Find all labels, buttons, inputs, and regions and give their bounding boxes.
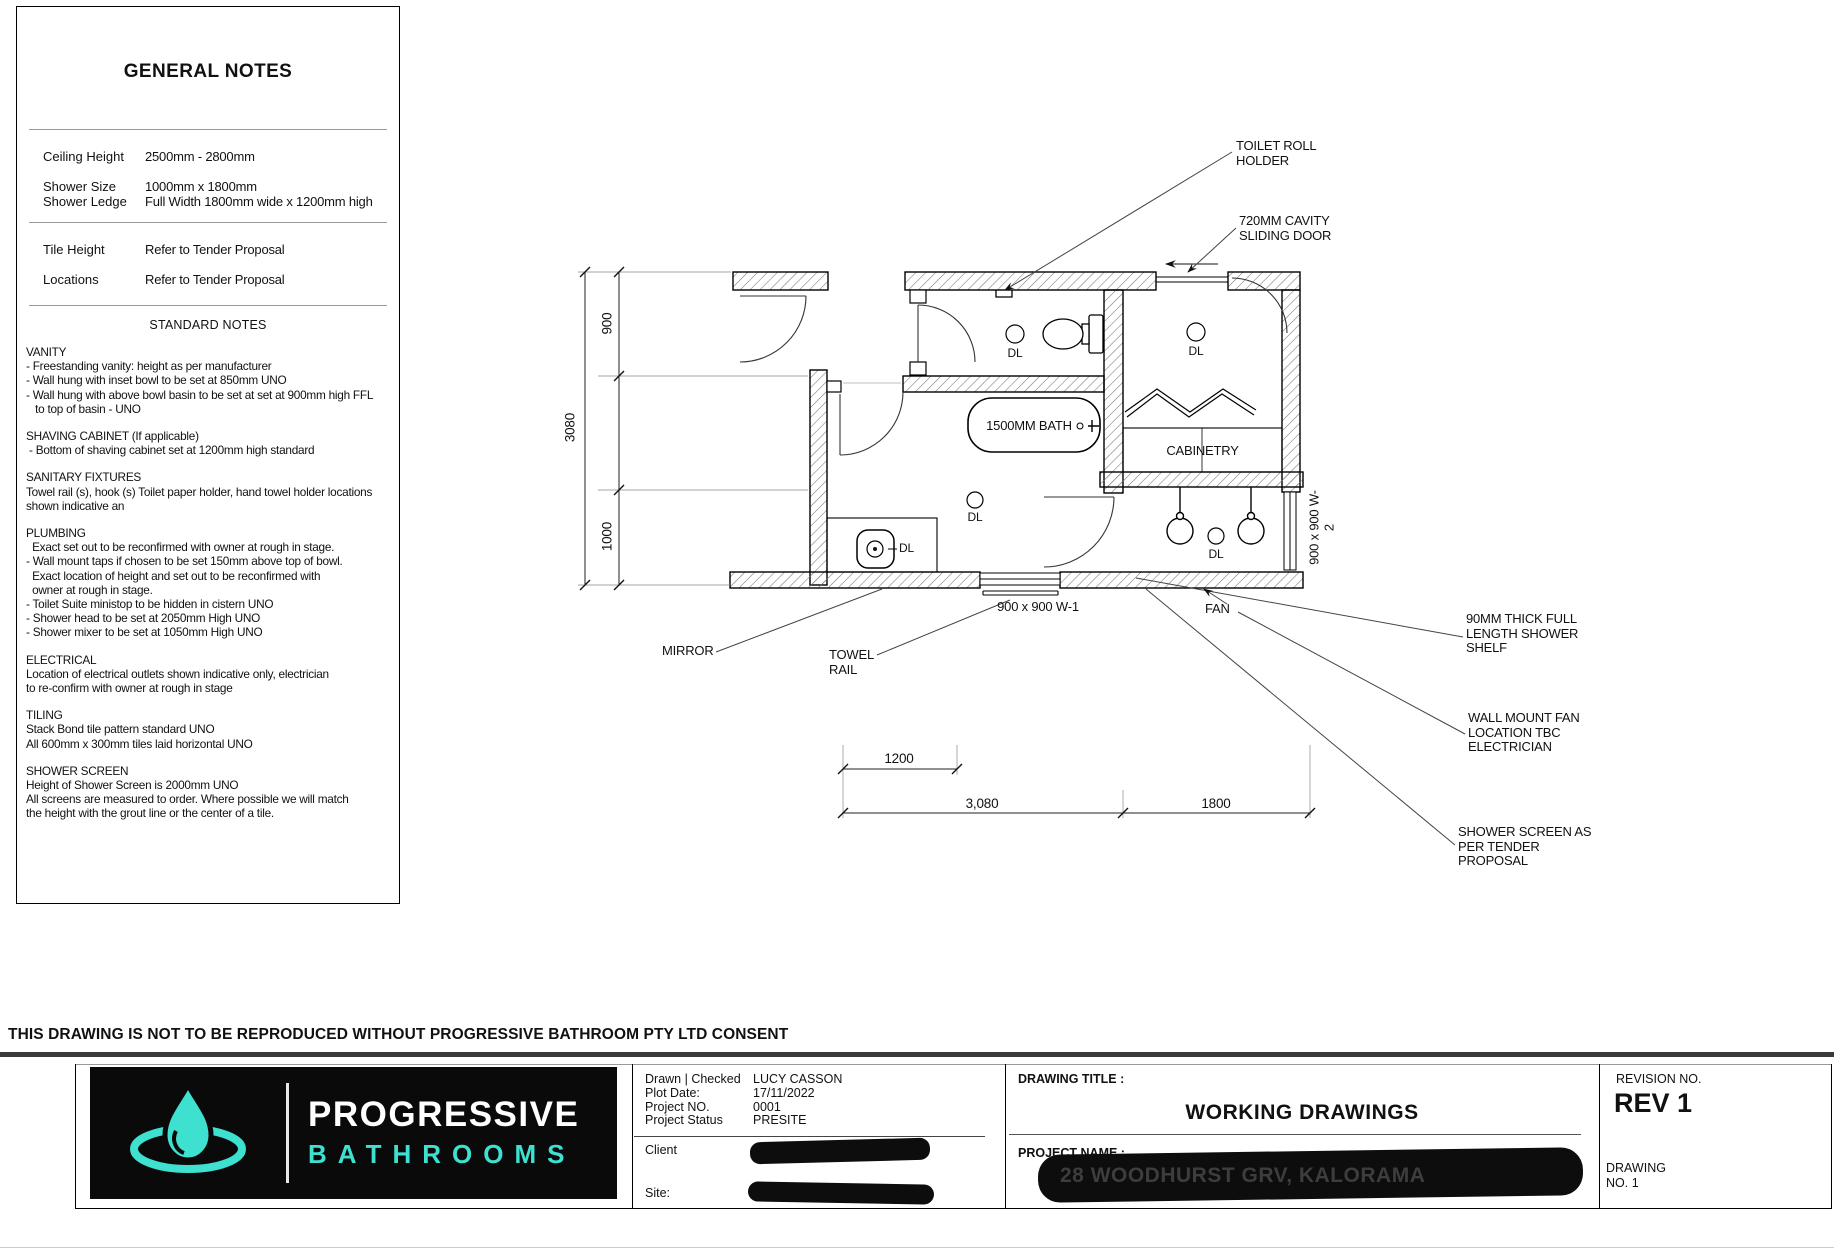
titleblock-border-left (75, 1064, 76, 1209)
spec-label: Tile Height (43, 242, 143, 257)
spec-label: Locations (43, 272, 143, 287)
note-section-line: - Bottom of shaving cabinet set at 1200m… (26, 443, 393, 457)
meta-label: Plot Date: (645, 1087, 753, 1101)
hanging-rail-symbol (1125, 389, 1256, 417)
note-section-line: Exact location of height and set out to … (26, 569, 393, 583)
note-section-heading: SHOWER SCREEN (26, 764, 393, 778)
note-section-heading: SANITARY FIXTURES (26, 470, 393, 484)
standard-notes-title: STANDARD NOTES (17, 318, 399, 332)
spec-value-line: Refer to Tender Proposal (145, 242, 391, 257)
downlight-label: DL (1001, 347, 1029, 360)
note-section: PLUMBING Exact set out to be reconfirmed… (26, 526, 393, 640)
logo-name-line1: PROGRESSIVE (308, 1095, 579, 1135)
downlight-label: DL (961, 511, 989, 524)
callout-towel-rail: TOWEL RAIL (829, 648, 893, 677)
downlight-label: DL (1202, 548, 1230, 561)
meta-value: PRESITE (753, 1114, 975, 1128)
note-section-heading: ELECTRICAL (26, 653, 393, 667)
note-section: VANITY- Freestanding vanity: height as p… (26, 345, 393, 416)
dim-1200: 1200 (869, 751, 929, 766)
project-meta: Drawn | CheckedLUCY CASSONPlot Date:17/1… (645, 1073, 975, 1128)
callout-shower-screen: SHOWER SCREEN AS PER TENDER PROPOSAL (1458, 825, 1598, 869)
spec-value-line: 1000mm x 1800mm (145, 179, 391, 194)
callout-mirror: MIRROR (662, 644, 714, 659)
toilet-roll-holder-symbol (996, 290, 1012, 297)
general-notes-panel: GENERAL NOTES Ceiling Height2500mm - 280… (16, 6, 400, 904)
note-section-line: the height with the grout line or the ce… (26, 806, 393, 820)
spec-value-line: Refer to Tender Proposal (145, 272, 391, 287)
titleblock-border-bottom (75, 1208, 1832, 1209)
note-section-heading: TILING (26, 708, 393, 722)
note-section-line: to re-confirm with owner at rough in sta… (26, 681, 393, 695)
meta-value: 17/11/2022 (753, 1087, 975, 1101)
cabinetry-label: CABINETRY (1123, 444, 1282, 459)
revision-label: REVISION NO. (1616, 1072, 1701, 1086)
water-drop-icon (90, 1067, 286, 1199)
titleblock-border-top (75, 1064, 1832, 1065)
company-logo: PROGRESSIVE BATHROOMS (90, 1067, 617, 1199)
note-section-line: Towel rail (s), hook (s) Toilet paper ho… (26, 485, 393, 499)
callout-shower-shelf: 90MM THICK FULL LENGTH SHOWER SHELF (1466, 612, 1606, 656)
meta-row: Project StatusPRESITE (645, 1114, 975, 1128)
note-section-line: - Freestanding vanity: height as per man… (26, 359, 393, 373)
spec-row: Ceiling Height2500mm - 2800mm (43, 149, 391, 164)
spec-label-line: Ceiling Height (43, 149, 143, 164)
titleblock-divider (1599, 1064, 1600, 1209)
logo-separator (286, 1083, 289, 1183)
note-section-line: - Wall hung with inset bowl to be set at… (26, 373, 393, 387)
spec-label: Shower SizeShower Ledge (43, 179, 143, 209)
bath-label: 1500MM BATH (968, 419, 1090, 434)
note-section-line: owner at rough in stage. (26, 583, 393, 597)
meta-row: Drawn | CheckedLUCY CASSON (645, 1073, 975, 1087)
titleblock-divider (632, 1064, 633, 1209)
sliding-door (1156, 264, 1228, 282)
note-section-heading: PLUMBING (26, 526, 393, 540)
toilet-fixture (1043, 315, 1103, 353)
note-section-line: to top of basin - UNO (26, 402, 393, 416)
note-section-line: All 600mm x 300mm tiles laid horizontal … (26, 737, 393, 751)
spec-row: Shower SizeShower Ledge1000mm x 1800mmFu… (43, 179, 391, 209)
spec-value: 1000mm x 1800mmFull Width 1800mm wide x … (145, 179, 391, 209)
drawing-sheet: { "notes_panel": { "title": "GENERAL NOT… (0, 0, 1834, 1252)
spec-rows-bottom: Tile HeightRefer to Tender ProposalLocat… (17, 223, 399, 287)
note-section: SHAVING CABINET (If applicable) - Bottom… (26, 429, 393, 457)
note-section-line: - Toilet Suite ministop to be hidden in … (26, 597, 393, 611)
notes-title: GENERAL NOTES (17, 61, 399, 83)
shower-roses (1167, 487, 1264, 544)
note-section-line: Height of Shower Screen is 2000mm UNO (26, 778, 393, 792)
window-w1-label: 900 x 900 W-1 (995, 600, 1081, 615)
dim-900: 900 (599, 294, 614, 354)
meta-label: Project Status (645, 1114, 753, 1128)
downlight-label: DL (1182, 345, 1210, 358)
drawing-no-value: NO. 1 (1606, 1176, 1639, 1190)
note-section: SHOWER SCREENHeight of Shower Screen is … (26, 764, 393, 821)
note-section-line: Exact set out to be reconfirmed with own… (26, 540, 393, 554)
dim-3080-left: 3080 (562, 398, 577, 458)
dim-1000: 1000 (599, 507, 614, 567)
spec-label-line: Shower Size (43, 179, 143, 194)
fan-label: FAN (1205, 602, 1230, 617)
spec-row: Tile HeightRefer to Tender Proposal (43, 242, 391, 257)
page-bottom-edge (0, 1247, 1834, 1248)
meta-label: Project NO. (645, 1101, 753, 1115)
note-section-line: - Shower head to be set at 2050mm High U… (26, 611, 393, 625)
note-section: SANITARY FIXTURESTowel rail (s), hook (s… (26, 470, 393, 513)
client-label: Client (645, 1143, 677, 1157)
vanity-fixture (827, 518, 937, 572)
drawing-title: WORKING DRAWINGS (1005, 1101, 1599, 1125)
client-redaction (750, 1138, 931, 1165)
meta-divider (634, 1136, 985, 1137)
callout-leaders (716, 152, 1465, 845)
note-section-heading: SHAVING CABINET (If applicable) (26, 429, 393, 443)
meta-label: Drawn | Checked (645, 1073, 753, 1087)
dim-1800: 1800 (1186, 796, 1246, 811)
spec-label-line: Tile Height (43, 242, 143, 257)
disclaimer-text: THIS DRAWING IS NOT TO BE REPRODUCED WIT… (8, 1026, 788, 1044)
dim-3080-bottom: 3,080 (952, 796, 1012, 811)
meta-row: Plot Date:17/11/2022 (645, 1087, 975, 1101)
spec-value: Refer to Tender Proposal (145, 272, 391, 287)
meta-value: 0001 (753, 1101, 975, 1115)
title-divider (1009, 1134, 1581, 1135)
callout-wall-fan: WALL MOUNT FAN LOCATION TBC ELECTRICIAN (1468, 711, 1588, 755)
note-section-line: - Wall mount taps if chosen to be set 15… (26, 554, 393, 568)
spec-rows-top: Ceiling Height2500mm - 2800mmShower Size… (17, 130, 399, 209)
divider (29, 305, 387, 306)
note-section: TILINGStack Bond tile pattern standard U… (26, 708, 393, 751)
titleblock-border-right (1831, 1064, 1832, 1209)
spec-label: Ceiling Height (43, 149, 143, 164)
note-section-heading: VANITY (26, 345, 393, 359)
revision-value: REV 1 (1614, 1088, 1692, 1119)
standard-notes-sections: VANITY- Freestanding vanity: height as p… (17, 345, 399, 821)
window-w2-label: 900 x 900 W-2 (1307, 488, 1336, 568)
logo-name-line2: BATHROOMS (308, 1135, 579, 1173)
note-section-line: shown indicative an (26, 499, 393, 513)
site-redaction (748, 1181, 934, 1204)
site-label: Site: (645, 1186, 670, 1200)
project-name: 28 WOODHURST GRV, KALORAMA (1060, 1164, 1590, 1188)
note-section-line: - Shower mixer to be set at 1050mm High … (26, 625, 393, 639)
meta-row: Project NO.0001 (645, 1101, 975, 1115)
note-section-line: Stack Bond tile pattern standard UNO (26, 722, 393, 736)
spec-value: Refer to Tender Proposal (145, 242, 391, 257)
note-section-line: - Wall hung with above bowl basin to be … (26, 388, 393, 402)
towel-rail-symbol (983, 591, 1058, 595)
drawing-title-label: DRAWING TITLE : (1018, 1072, 1124, 1086)
spec-row: LocationsRefer to Tender Proposal (43, 272, 391, 287)
footer-rule (0, 1052, 1834, 1057)
meta-value: LUCY CASSON (753, 1073, 975, 1087)
note-section: ELECTRICALLocation of electrical outlets… (26, 653, 393, 696)
drawing-no-label: DRAWING (1606, 1161, 1666, 1175)
callout-toilet-roll-holder: TOILET ROLL HOLDER (1236, 139, 1346, 168)
spec-value-line: 2500mm - 2800mm (145, 149, 391, 164)
spec-label-line: Shower Ledge (43, 194, 143, 209)
titleblock-divider (1005, 1064, 1006, 1209)
note-section-line: Location of electrical outlets shown ind… (26, 667, 393, 681)
downlight-label: DL (899, 542, 914, 555)
spec-label-line: Locations (43, 272, 143, 287)
note-section-line: All screens are measured to order. Where… (26, 792, 393, 806)
spec-value: 2500mm - 2800mm (145, 149, 391, 164)
callout-sliding-door: 720MM CAVITY SLIDING DOOR (1239, 214, 1369, 243)
spec-value-line: Full Width 1800mm wide x 1200mm high (145, 194, 391, 209)
